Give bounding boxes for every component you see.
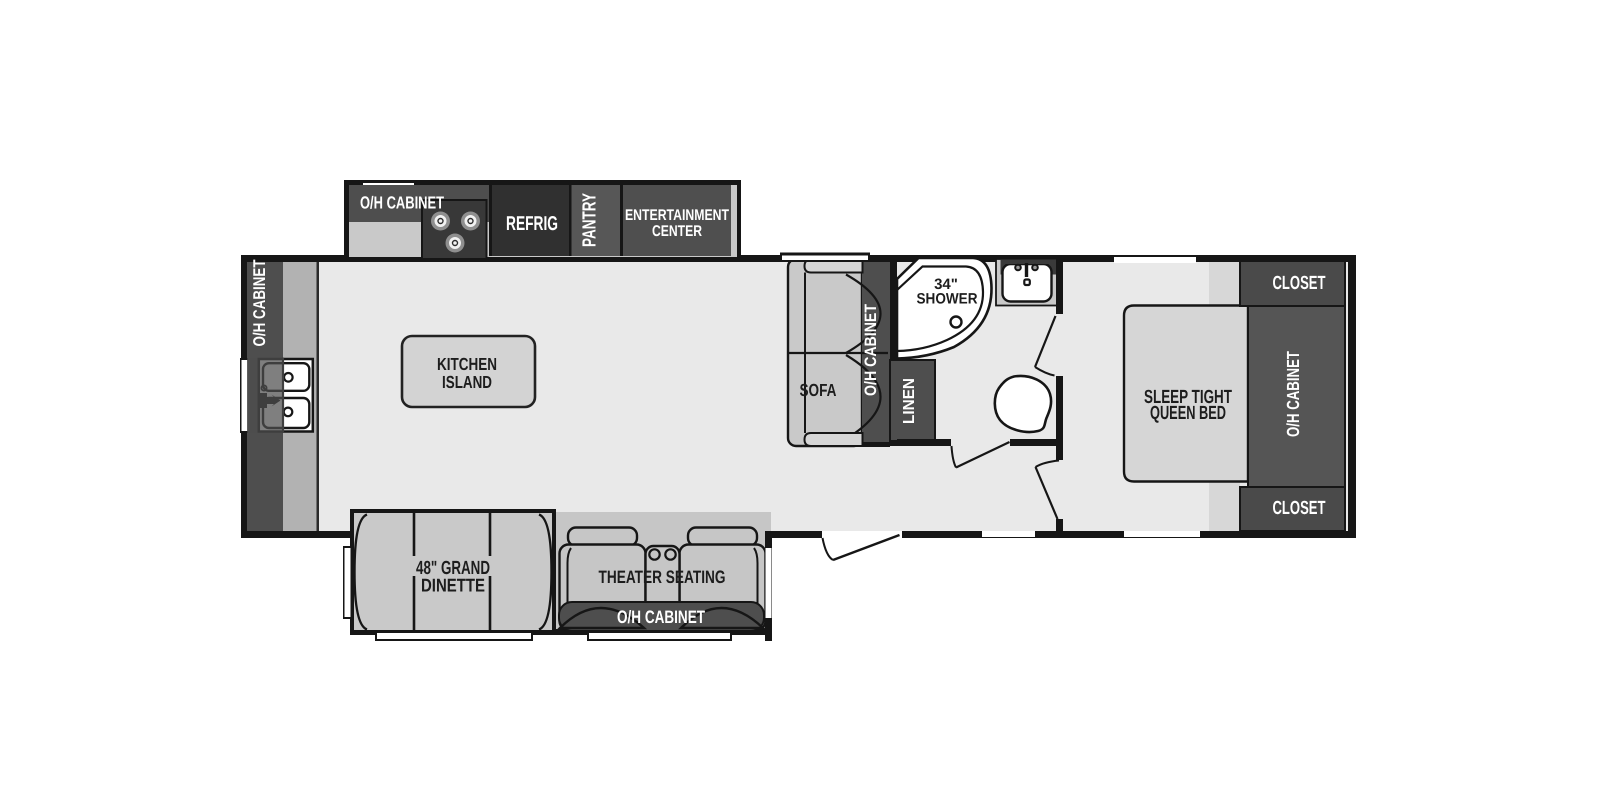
svg-text:THEATER SEATING: THEATER SEATING — [599, 567, 726, 587]
svg-text:DINETTE: DINETTE — [421, 575, 485, 596]
svg-text:O/H CABINET: O/H CABINET — [862, 304, 880, 396]
svg-text:CENTER: CENTER — [652, 223, 702, 240]
svg-text:SOFA: SOFA — [800, 380, 837, 400]
svg-text:ISLAND: ISLAND — [442, 372, 492, 392]
svg-text:QUEEN BED: QUEEN BED — [1150, 403, 1226, 424]
svg-text:ENTERTAINMENT: ENTERTAINMENT — [625, 207, 729, 224]
svg-text:O/H CABINET: O/H CABINET — [250, 259, 269, 346]
svg-text:REFRIG: REFRIG — [506, 213, 558, 235]
svg-text:CLOSET: CLOSET — [1273, 273, 1326, 294]
svg-text:KITCHEN: KITCHEN — [437, 354, 497, 374]
svg-text:LINEN: LINEN — [901, 378, 918, 424]
svg-text:O/H CABINET: O/H CABINET — [1283, 351, 1303, 437]
svg-text:PANTRY: PANTRY — [580, 193, 601, 247]
svg-text:O/H CABINET: O/H CABINET — [617, 607, 705, 627]
svg-text:SHOWER: SHOWER — [917, 291, 978, 308]
svg-text:O/H CABINET: O/H CABINET — [360, 193, 444, 213]
svg-text:CLOSET: CLOSET — [1273, 498, 1326, 519]
